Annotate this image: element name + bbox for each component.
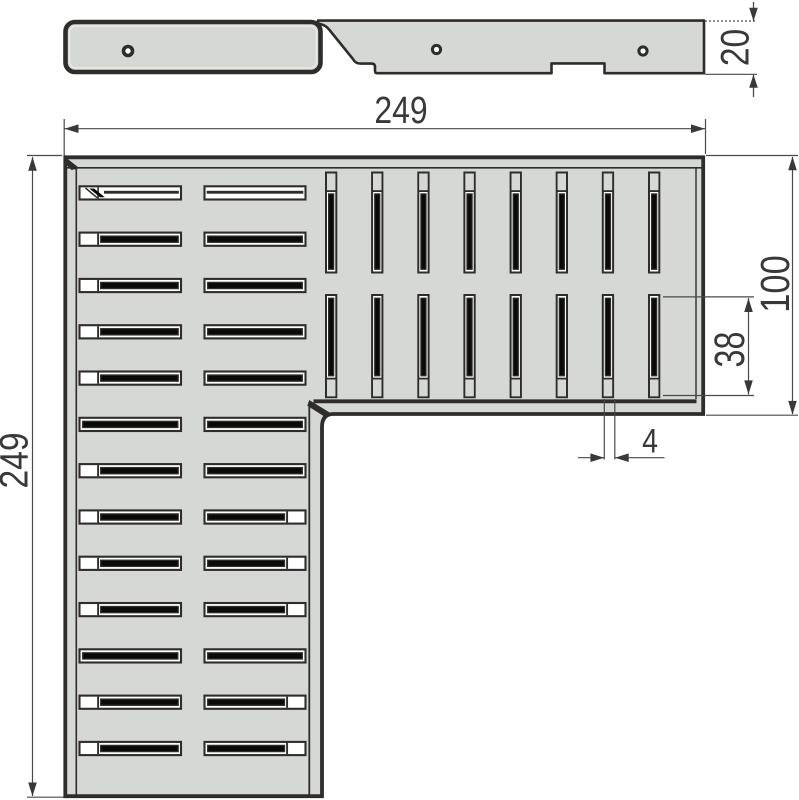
svg-text:249: 249 [374,89,427,131]
svg-text:4: 4 [642,422,658,460]
svg-text:38: 38 [707,332,755,368]
svg-text:20: 20 [713,29,757,66]
svg-text:249: 249 [0,432,36,488]
svg-text:100: 100 [753,255,798,312]
